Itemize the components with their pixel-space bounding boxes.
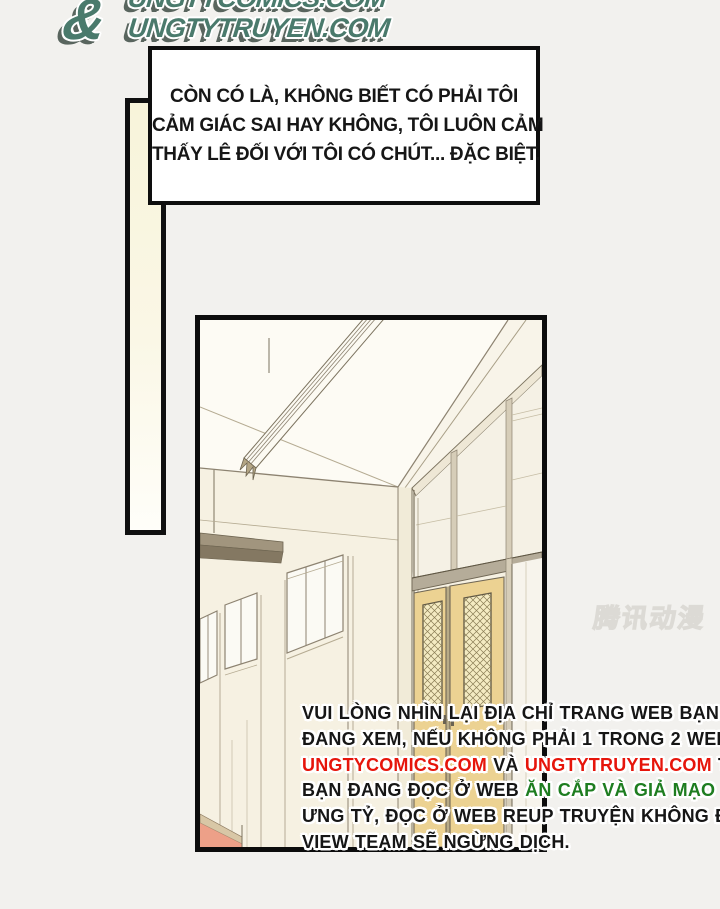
notice-line: VUI LÒNG NHÌN LẠI ĐỊA CHỈ TRANG WEB BẠN: [302, 701, 720, 727]
notice-site-url: UNGTYTRUYEN.COM: [525, 755, 712, 775]
speech-bubble-line: CẢM GIÁC SAI HAY KHÔNG, TÔI LUÔN CẢM: [152, 111, 536, 140]
notice-text: ĐANG XEM, NẾU KHÔNG PHẢI 1 TRONG 2 WEB: [302, 729, 720, 749]
comic-page: UNGTYCOMICS.COM & UNGTYTRUYEN.COM CÒN CÓ…: [0, 0, 720, 909]
notice-site-url: UNGTYCOMICS.COM: [302, 755, 487, 775]
notice-line: ƯNG TỶ, ĐỌC Ở WEB REUP TRUYỆN KHÔNG ĐỦ: [302, 804, 720, 830]
notice-text: VIEW TEAM SẼ NGỪNG DỊCH.: [302, 832, 570, 852]
logo-line-bottom: UNGTYTRUYEN.COM: [126, 13, 390, 44]
notice-text: VUI LÒNG NHÌN LẠI ĐỊA CHỈ TRANG WEB BẠN: [302, 703, 719, 723]
speech-bubble: CÒN CÓ LÀ, KHÔNG BIẾT CÓ PHẢI TÔI CẢM GI…: [148, 46, 540, 205]
notice-text: VÀ: [487, 755, 525, 775]
notice-text: THÌ: [712, 755, 720, 775]
anti-piracy-notice: VUI LÒNG NHÌN LẠI ĐỊA CHỈ TRANG WEB BẠN …: [302, 701, 720, 856]
notice-line: UNGTYCOMICS.COM VÀ UNGTYTRUYEN.COM THÌ: [302, 753, 720, 779]
logo-line-top: UNGTYCOMICS.COM: [126, 0, 387, 14]
notice-text: BẠN ĐANG ĐỌC Ở WEB: [302, 780, 525, 800]
notice-line: VIEW TEAM SẼ NGỪNG DỊCH.: [302, 830, 720, 856]
tencent-watermark: 腾讯动漫: [591, 598, 720, 635]
speech-bubble-line: THẤY LÊ ĐỐI VỚI TÔI CÓ CHÚT... ĐẶC BIỆT.: [152, 140, 536, 169]
notice-line: ĐANG XEM, NẾU KHÔNG PHẢI 1 TRONG 2 WEB: [302, 727, 720, 753]
logo-ampersand-icon: &: [58, 0, 112, 53]
notice-warning-text: ĂN CẮP VÀ GIẢ MẠO: [525, 780, 715, 800]
notice-text: ƯNG TỶ, ĐỌC Ở WEB REUP TRUYỆN KHÔNG ĐỦ: [302, 806, 720, 826]
speech-bubble-line: CÒN CÓ LÀ, KHÔNG BIẾT CÓ PHẢI TÔI: [152, 82, 536, 111]
notice-line: BẠN ĐANG ĐỌC Ở WEB ĂN CẮP VÀ GIẢ MẠO: [302, 778, 720, 804]
